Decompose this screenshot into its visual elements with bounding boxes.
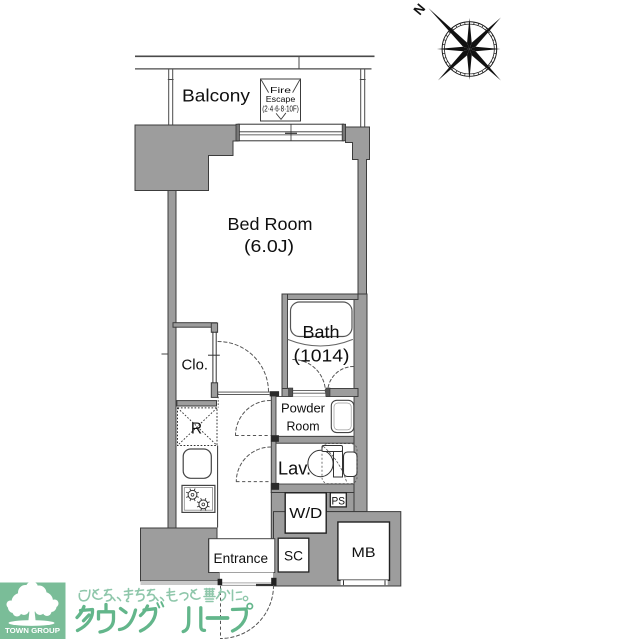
svg-text:R: R [191, 421, 202, 438]
svg-text:Clo.: Clo. [182, 357, 209, 374]
svg-text:Lav.: Lav. [278, 458, 311, 479]
svg-text:N: N [411, 1, 429, 18]
svg-text:W/D: W/D [289, 506, 322, 522]
svg-text:Escape: Escape [266, 94, 296, 104]
svg-text:(2·4·6·8·10F): (2·4·6·8·10F) [262, 105, 299, 114]
svg-text:(1014): (1014) [294, 346, 350, 366]
svg-text:(6.0J): (6.0J) [244, 236, 294, 256]
svg-text:Balcony: Balcony [182, 86, 250, 106]
svg-text:MB: MB [352, 545, 376, 560]
svg-text:TOWN GROUP: TOWN GROUP [5, 626, 60, 635]
svg-text:Room: Room [287, 420, 320, 434]
svg-text:Powder: Powder [281, 402, 325, 416]
svg-text:Bed Room: Bed Room [228, 214, 313, 234]
svg-text:Entrance: Entrance [214, 550, 269, 566]
svg-text:SC: SC [284, 548, 303, 564]
svg-text:Bath: Bath [303, 322, 340, 342]
svg-text:PS: PS [332, 495, 346, 507]
